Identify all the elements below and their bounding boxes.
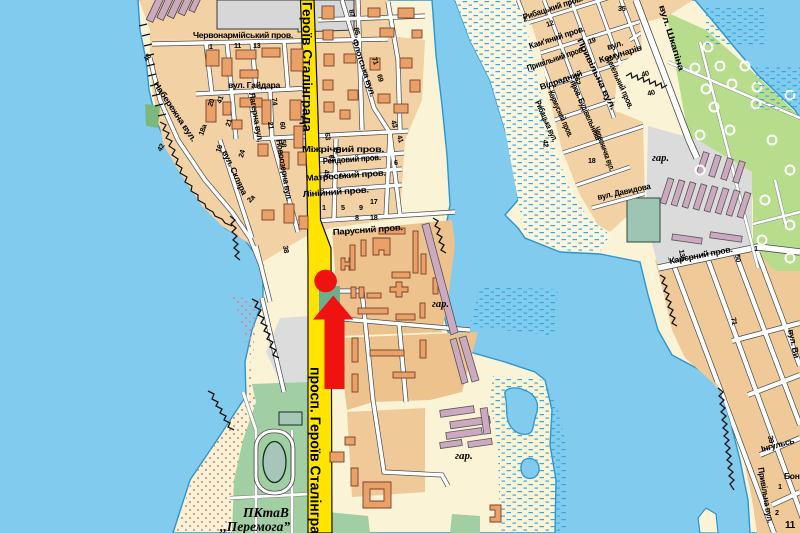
- svg-text:5: 5: [341, 203, 345, 212]
- svg-text:8: 8: [355, 213, 359, 222]
- svg-text:гар.: гар.: [432, 299, 449, 310]
- svg-text:ПКтаВ: ПКтаВ: [242, 505, 289, 520]
- svg-text:21: 21: [266, 121, 276, 129]
- svg-text:60: 60: [278, 121, 288, 129]
- svg-text:18: 18: [370, 213, 378, 222]
- svg-text:1: 1: [778, 482, 782, 491]
- svg-text:Червонармійський пров.: Червонармійський пров.: [193, 30, 293, 40]
- svg-text:51: 51: [333, 146, 343, 155]
- svg-text:11: 11: [234, 41, 241, 50]
- svg-text:17: 17: [370, 197, 378, 206]
- svg-text:гар.: гар.: [652, 153, 669, 164]
- svg-text:гар.: гар.: [455, 450, 473, 462]
- svg-text:1: 1: [209, 42, 213, 51]
- svg-text:74: 74: [270, 97, 280, 105]
- svg-text:6: 6: [394, 158, 398, 167]
- svg-text:1: 1: [754, 244, 758, 253]
- svg-text:,,Перемога”: ,,Перемога”: [219, 519, 290, 533]
- svg-text:11: 11: [785, 520, 796, 531]
- svg-text:45: 45: [322, 169, 332, 178]
- svg-text:61: 61: [327, 154, 337, 163]
- svg-text:58: 58: [279, 139, 289, 147]
- svg-text:13: 13: [253, 41, 261, 50]
- svg-text:Бон: Бон: [784, 471, 800, 481]
- svg-text:вул. Гайдара: вул. Гайдара: [228, 80, 281, 90]
- svg-text:35: 35: [618, 4, 626, 13]
- svg-text:просп. Героїв Сталінград: просп. Героїв Сталінград: [307, 367, 323, 533]
- svg-text:63: 63: [323, 132, 333, 141]
- svg-text:42: 42: [541, 139, 551, 147]
- svg-text:1: 1: [322, 203, 326, 212]
- svg-text:2: 2: [775, 508, 779, 517]
- svg-text:18: 18: [588, 156, 596, 165]
- svg-text:9: 9: [359, 203, 363, 212]
